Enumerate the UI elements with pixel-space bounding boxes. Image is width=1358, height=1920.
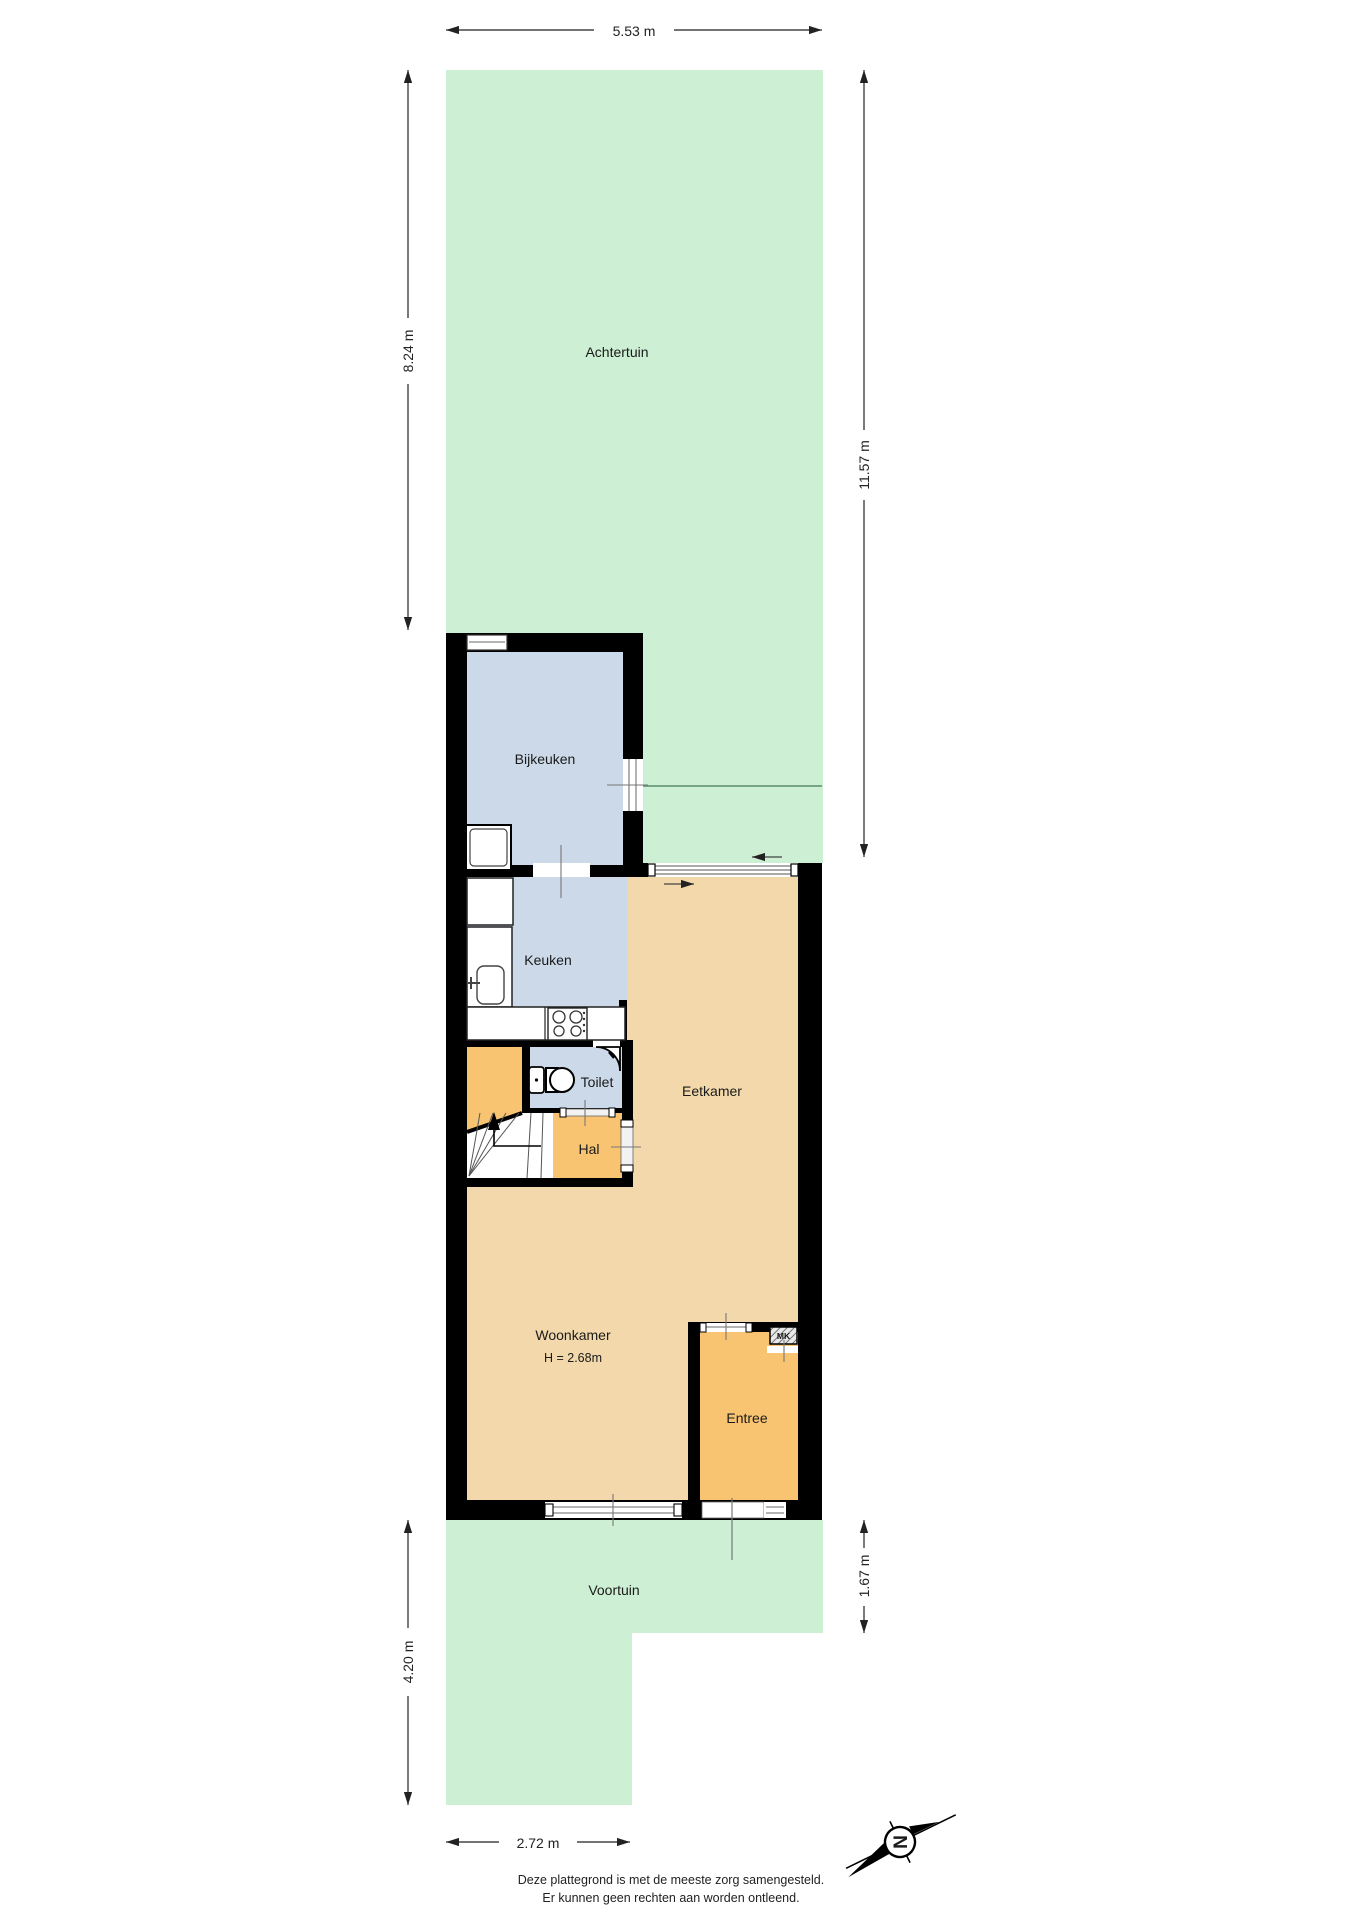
label-mk: MK bbox=[777, 1331, 791, 1341]
mk-door bbox=[767, 1346, 798, 1353]
svg-text:N: N bbox=[889, 1835, 910, 1849]
label-voortuin: Voortuin bbox=[588, 1582, 639, 1598]
hand-basin-icon bbox=[529, 1067, 544, 1093]
dimension-top-width: 5.53 m bbox=[446, 18, 822, 41]
window-bijkeuken-top bbox=[467, 635, 507, 650]
door-hal-eetkamer bbox=[621, 1120, 633, 1172]
front-garden-area-narrow bbox=[446, 1633, 632, 1805]
door-toilet-gap bbox=[593, 1040, 620, 1047]
footer-disclaimer-line2: Er kunnen geen rechten aan worden ontlee… bbox=[542, 1891, 799, 1905]
label-bijkeuken: Bijkeuken bbox=[515, 751, 576, 767]
floorplan-page: Achtertuin Bijkeuken Keuken Toilet Hal E… bbox=[0, 0, 1358, 1920]
dimension-frontgarden-right: 1.67 m bbox=[850, 1520, 876, 1633]
svg-text:4.20 m: 4.20 m bbox=[400, 1641, 416, 1684]
window-entree-front bbox=[764, 1502, 786, 1518]
label-hal: Hal bbox=[578, 1141, 599, 1157]
svg-text:8.24 m: 8.24 m bbox=[400, 330, 416, 373]
svg-text:2.72 m: 2.72 m bbox=[517, 1835, 560, 1851]
dimension-right-depth: 11.57 m bbox=[850, 70, 876, 857]
label-woonkamer: Woonkamer bbox=[535, 1327, 611, 1343]
label-achtertuin: Achtertuin bbox=[585, 344, 648, 360]
label-toilet: Toilet bbox=[581, 1074, 614, 1090]
washing-machine-icon bbox=[466, 825, 511, 870]
sliding-door-garden bbox=[648, 863, 798, 877]
dimension-frontgarden-left: 4.20 m bbox=[394, 1520, 420, 1805]
toilet-icon bbox=[546, 1068, 574, 1092]
label-eetkamer: Eetkamer bbox=[682, 1083, 742, 1099]
svg-text:11.57 m: 11.57 m bbox=[856, 440, 872, 490]
floorplan-canvas: Achtertuin Bijkeuken Keuken Toilet Hal E… bbox=[0, 0, 1358, 1920]
compass-north-icon: N bbox=[834, 1794, 966, 1890]
dimension-bottom-width: 2.72 m bbox=[446, 1830, 630, 1853]
dimension-backgarden-depth: 8.24 m bbox=[394, 70, 420, 630]
label-keuken: Keuken bbox=[524, 952, 571, 968]
cooktop-icon bbox=[548, 1008, 587, 1040]
wall-entree-left bbox=[688, 1322, 700, 1500]
front-door bbox=[702, 1502, 764, 1518]
footer-disclaimer-line1: Deze plattegrond is met de meeste zorg s… bbox=[518, 1873, 824, 1887]
label-woonkamer-height: H = 2.68m bbox=[544, 1351, 602, 1365]
door-toilet-hal bbox=[560, 1108, 615, 1117]
label-entree: Entree bbox=[726, 1410, 767, 1426]
svg-text:1.67 m: 1.67 m bbox=[856, 1555, 872, 1598]
svg-text:5.53 m: 5.53 m bbox=[613, 23, 656, 39]
front-garden-area-wide bbox=[446, 1520, 823, 1633]
